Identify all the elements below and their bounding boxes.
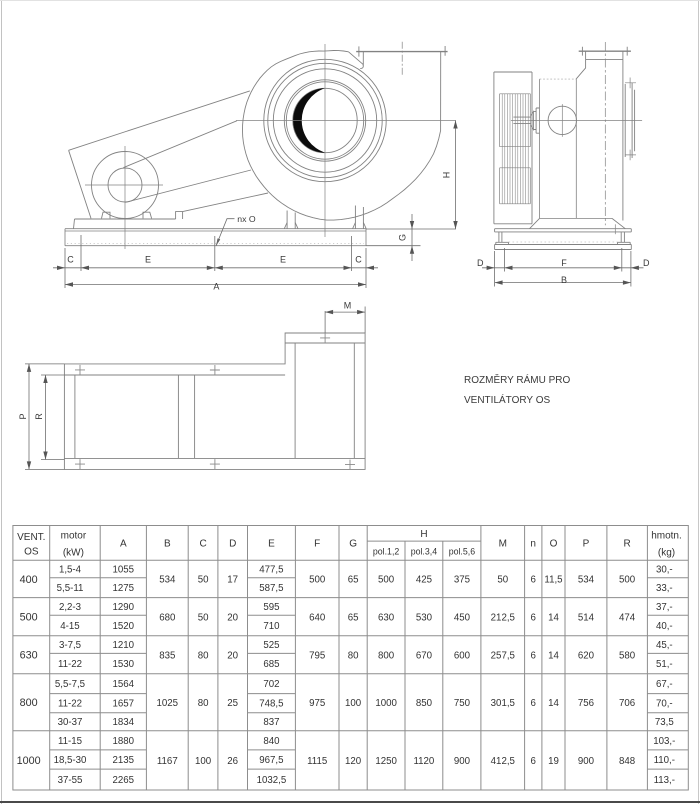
svg-text:80: 80 [198,698,209,709]
svg-text:11-22: 11-22 [58,659,82,670]
svg-text:595: 595 [263,602,279,613]
svg-text:G: G [398,234,408,241]
svg-text:M: M [344,301,352,311]
svg-text:67,-: 67,- [656,679,673,690]
svg-text:840: 840 [263,736,280,747]
svg-text:2,2-3: 2,2-3 [59,602,81,613]
svg-text:motor: motor [61,530,87,541]
svg-text:600: 600 [454,650,471,661]
svg-text:400: 400 [20,574,38,586]
svg-text:702: 702 [263,679,279,690]
svg-text:2135: 2135 [113,755,135,766]
svg-text:257,5: 257,5 [491,650,515,661]
svg-text:474: 474 [619,612,636,623]
svg-text:680: 680 [159,612,176,623]
svg-text:25: 25 [227,698,238,709]
svg-text:630: 630 [20,650,38,662]
svg-text:477,5: 477,5 [259,565,283,576]
svg-text:nx O: nx O [237,214,256,224]
svg-text:1275: 1275 [113,583,135,594]
svg-text:100: 100 [345,698,362,709]
svg-text:80: 80 [198,650,209,661]
svg-text:R: R [34,413,44,420]
svg-text:3-7,5: 3-7,5 [59,640,81,651]
svg-text:301,5: 301,5 [491,698,515,709]
svg-text:hmotn.: hmotn. [651,530,682,541]
svg-text:425: 425 [416,575,432,586]
svg-text:1250: 1250 [375,756,397,767]
svg-text:30,-: 30,- [656,565,673,576]
svg-text:1210: 1210 [113,640,135,651]
svg-text:18,5-30: 18,5-30 [54,755,87,766]
svg-text:525: 525 [263,640,279,651]
svg-text:ROZMĚRY RÁMU PRO: ROZMĚRY RÁMU PRO [464,373,571,386]
svg-text:750: 750 [454,698,471,709]
svg-text:835: 835 [159,650,175,661]
svg-text:A: A [120,539,127,550]
svg-text:D: D [229,539,236,550]
svg-text:534: 534 [578,575,595,586]
svg-text:G: G [349,539,357,550]
svg-text:795: 795 [309,650,325,661]
svg-text:VENTILÁTORY OS: VENTILÁTORY OS [464,393,550,406]
svg-text:VENT.: VENT. [17,532,45,543]
svg-text:1000: 1000 [17,755,41,767]
svg-text:800: 800 [378,650,395,661]
svg-text:500: 500 [619,575,636,586]
svg-text:11-22: 11-22 [58,699,82,710]
svg-text:pol.1,2: pol.1,2 [373,547,400,557]
svg-text:1055: 1055 [113,565,135,576]
svg-text:587,5: 587,5 [259,583,283,594]
svg-text:14: 14 [548,650,559,661]
svg-text:P: P [583,539,590,550]
svg-text:848: 848 [619,756,635,767]
svg-text:D: D [643,258,650,268]
svg-text:F: F [314,539,320,550]
svg-text:50: 50 [497,575,508,586]
svg-text:65: 65 [348,612,359,623]
svg-text:26: 26 [227,756,238,767]
svg-text:6: 6 [531,756,536,767]
svg-text:n: n [530,539,536,550]
svg-text:14: 14 [548,612,559,623]
svg-text:1,5-4: 1,5-4 [59,565,82,576]
svg-text:11-15: 11-15 [58,736,82,747]
svg-text:pol.3,4: pol.3,4 [411,547,438,557]
svg-text:1167: 1167 [157,756,178,767]
svg-text:748,5: 748,5 [259,699,283,710]
svg-text:6: 6 [531,612,536,623]
svg-text:120: 120 [345,756,362,767]
svg-text:212,5: 212,5 [491,612,515,623]
svg-text:70,-: 70,- [656,699,673,710]
svg-text:O: O [550,539,558,550]
svg-text:967,5: 967,5 [259,755,283,766]
svg-text:80: 80 [348,650,359,661]
svg-text:685: 685 [263,659,279,670]
svg-text:A: A [213,282,219,292]
svg-text:(kW): (kW) [63,548,84,559]
svg-text:14: 14 [548,698,559,709]
svg-text:110,-: 110,- [654,755,675,766]
svg-text:50: 50 [198,612,209,623]
svg-text:M: M [499,539,507,550]
svg-text:412,5: 412,5 [491,756,515,767]
svg-text:50: 50 [198,575,209,586]
svg-text:11,5: 11,5 [544,575,562,586]
svg-text:5,5-11: 5,5-11 [57,583,84,594]
svg-text:20: 20 [227,650,238,661]
svg-text:4-15: 4-15 [60,621,79,632]
svg-text:6: 6 [531,698,536,709]
svg-text:E: E [268,539,275,550]
svg-text:1834: 1834 [113,717,135,728]
svg-text:800: 800 [20,697,38,709]
svg-text:500: 500 [20,612,38,624]
svg-text:40,-: 40,- [656,621,673,632]
svg-text:1657: 1657 [113,699,135,710]
svg-text:534: 534 [159,575,176,586]
svg-text:30-37: 30-37 [58,717,83,728]
svg-text:900: 900 [454,756,471,767]
svg-text:(kg): (kg) [658,547,675,558]
svg-text:65: 65 [348,575,359,586]
svg-text:D: D [477,258,484,268]
svg-text:100: 100 [195,756,212,767]
svg-text:37,-: 37,- [656,602,673,613]
svg-text:670: 670 [416,650,433,661]
svg-text:1032,5: 1032,5 [257,775,287,786]
svg-text:P: P [18,413,28,419]
svg-text:B: B [164,539,171,550]
svg-text:45,-: 45,- [656,640,673,651]
svg-text:710: 710 [263,621,280,632]
svg-text:1000: 1000 [375,698,397,709]
svg-text:6: 6 [531,650,536,661]
svg-text:R: R [623,539,630,550]
svg-text:640: 640 [309,612,326,623]
svg-text:C: C [355,255,362,265]
svg-text:5,5-7,5: 5,5-7,5 [55,679,85,690]
svg-text:1564: 1564 [113,679,135,690]
svg-text:OS: OS [24,547,39,558]
svg-text:630: 630 [378,612,395,623]
svg-text:B: B [561,275,567,285]
svg-text:1520: 1520 [113,621,135,632]
svg-text:850: 850 [416,698,433,709]
svg-text:H: H [442,172,452,179]
svg-text:530: 530 [416,612,433,623]
svg-text:73,5: 73,5 [655,717,674,728]
svg-text:756: 756 [578,698,594,709]
svg-text:1025: 1025 [157,698,179,709]
svg-text:900: 900 [578,756,595,767]
svg-text:C: C [199,539,206,550]
svg-text:E: E [280,255,286,265]
svg-text:1530: 1530 [113,659,135,670]
svg-text:620: 620 [578,650,595,661]
svg-text:C: C [67,255,74,265]
svg-text:500: 500 [378,575,395,586]
svg-text:20: 20 [227,612,238,623]
svg-text:51,-: 51,- [656,659,673,670]
svg-text:19: 19 [548,756,559,767]
svg-text:580: 580 [619,650,636,661]
svg-text:E: E [145,255,151,265]
svg-text:37-55: 37-55 [58,775,83,786]
svg-text:514: 514 [578,612,595,623]
svg-text:1880: 1880 [113,736,135,747]
svg-text:2265: 2265 [113,775,135,786]
svg-text:500: 500 [309,575,326,586]
svg-text:1115: 1115 [307,756,327,767]
svg-text:837: 837 [263,717,279,728]
svg-text:103,-: 103,- [653,736,675,747]
svg-text:F: F [561,258,567,268]
svg-text:H: H [420,529,427,540]
svg-text:375: 375 [454,575,470,586]
svg-text:6: 6 [531,575,536,586]
svg-text:17: 17 [227,575,238,586]
svg-text:pol.5,6: pol.5,6 [449,547,476,557]
svg-text:1120: 1120 [413,756,434,767]
svg-text:450: 450 [454,612,471,623]
svg-text:33,-: 33,- [656,583,673,594]
svg-text:113,-: 113,- [654,775,675,786]
svg-text:975: 975 [309,698,325,709]
svg-text:706: 706 [619,698,635,709]
svg-text:1290: 1290 [113,602,135,613]
